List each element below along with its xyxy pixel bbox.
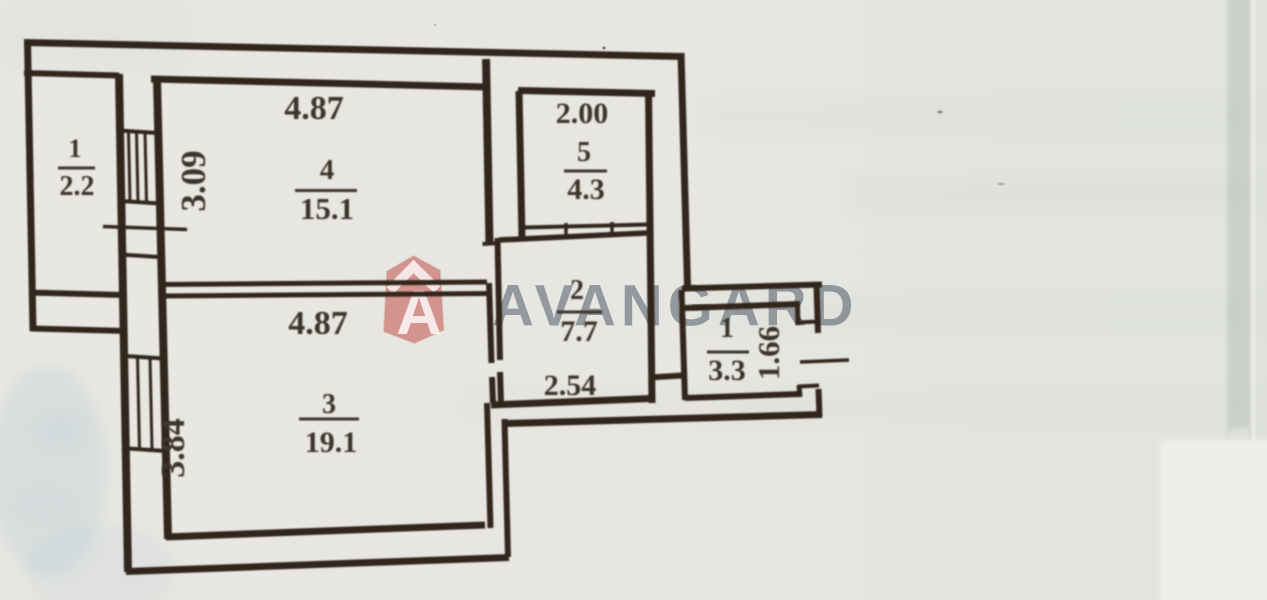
svg-text:2.2: 2.2 [60, 171, 95, 202]
svg-text:4: 4 [320, 154, 335, 186]
svg-text:7.7: 7.7 [560, 315, 598, 348]
svg-text:4.3: 4.3 [567, 173, 605, 206]
svg-text:15.1: 15.1 [300, 191, 354, 226]
svg-text:3.3: 3.3 [708, 354, 746, 387]
svg-text:A: A [396, 278, 442, 348]
svg-text:3.09: 3.09 [174, 150, 213, 211]
svg-text:5: 5 [577, 137, 591, 168]
svg-text:3.84: 3.84 [155, 418, 192, 478]
svg-text:1.66: 1.66 [751, 326, 786, 380]
svg-text:19.1: 19.1 [305, 426, 358, 459]
svg-text:1: 1 [69, 134, 82, 163]
svg-text:2.00: 2.00 [556, 97, 609, 130]
svg-text:2: 2 [570, 275, 584, 306]
svg-text:3: 3 [322, 389, 336, 420]
svg-text:1: 1 [720, 313, 734, 344]
svg-text:4.87: 4.87 [284, 90, 344, 127]
svg-text:2.54: 2.54 [544, 369, 597, 402]
svg-text:4.87: 4.87 [288, 305, 348, 342]
